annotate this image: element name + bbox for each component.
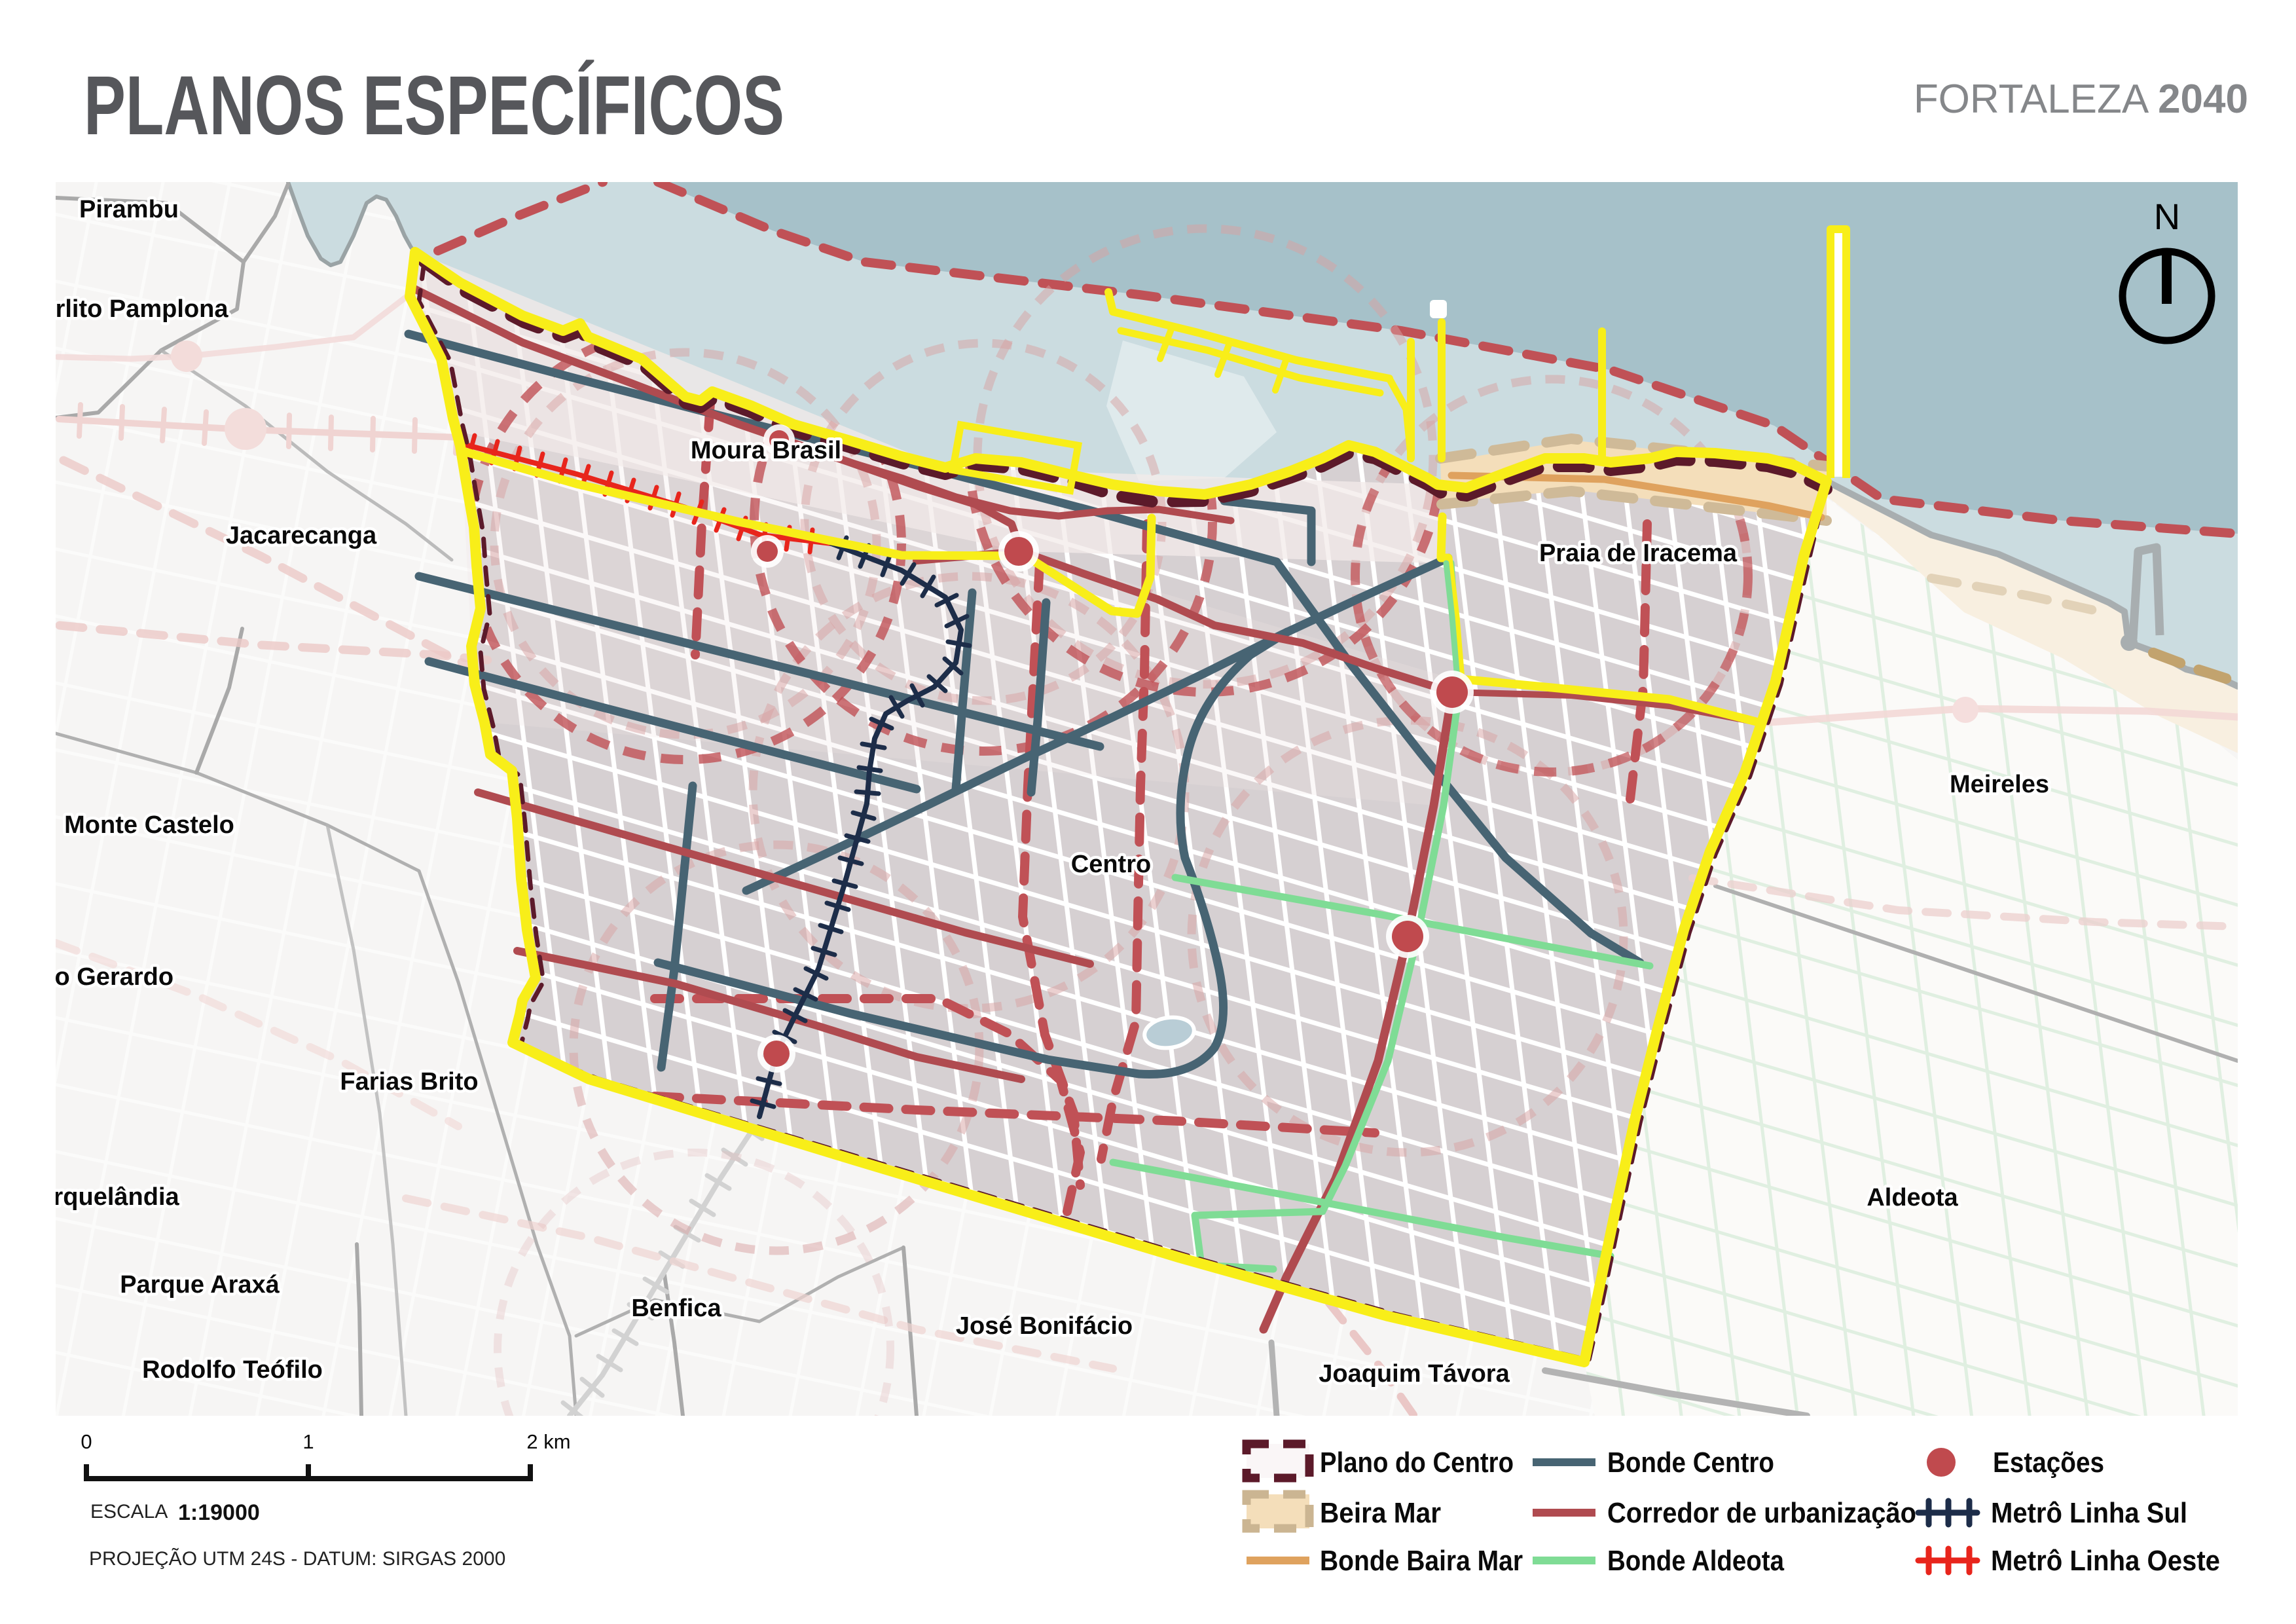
svg-text:Moura Brasil: Moura Brasil: [691, 437, 841, 464]
svg-text:Plano do Centro: Plano do Centro: [1320, 1447, 1514, 1479]
svg-text:Monte Castelo: Monte Castelo: [64, 811, 234, 839]
svg-text:Parquelândia: Parquelândia: [23, 1183, 179, 1211]
svg-text:Meireles: Meireles: [1950, 771, 2049, 798]
svg-text:Centro: Centro: [1071, 851, 1151, 878]
svg-text:Farias Brito: Farias Brito: [340, 1068, 478, 1096]
svg-text:Bonde Aldeota: Bonde Aldeota: [1607, 1545, 1784, 1577]
svg-text:Bonde Baira Mar: Bonde Baira Mar: [1320, 1545, 1523, 1577]
svg-text:FORTALEZA 2040: FORTALEZA 2040: [1914, 77, 2248, 122]
svg-text:2 km: 2 km: [526, 1430, 570, 1453]
svg-text:PROJEÇÃO UTM 24S - DATUM: SIRG: PROJEÇÃO UTM 24S - DATUM: SIRGAS 2000: [89, 1547, 505, 1570]
svg-text:Benfica: Benfica: [631, 1295, 721, 1322]
svg-text:1: 1: [302, 1430, 314, 1453]
svg-text:Carlito Pamplona: Carlito Pamplona: [24, 295, 228, 323]
svg-text:Praia de Iracema: Praia de Iracema: [1539, 540, 1738, 567]
svg-text:José Bonifácio: José Bonifácio: [956, 1312, 1133, 1340]
svg-text:Metrô Linha Sul: Metrô Linha Sul: [1991, 1497, 2187, 1529]
svg-text:Parque Araxá: Parque Araxá: [120, 1271, 280, 1299]
svg-text:São Gerardo: São Gerardo: [24, 963, 173, 991]
svg-text:Joaquim Távora: Joaquim Távora: [1319, 1360, 1510, 1388]
svg-text:Corredor de urbanização: Corredor de urbanização: [1607, 1497, 1916, 1529]
svg-text:0: 0: [81, 1430, 92, 1453]
svg-text:ESCALA: ESCALA: [90, 1501, 168, 1522]
svg-text:Bonde Centro: Bonde Centro: [1607, 1447, 1774, 1479]
svg-text:1:19000: 1:19000: [178, 1500, 260, 1525]
svg-text:N: N: [2154, 196, 2180, 237]
svg-text:Pirambu: Pirambu: [79, 196, 179, 223]
svg-text:Metrô Linha Oeste: Metrô Linha Oeste: [1991, 1545, 2220, 1577]
svg-text:Jacarecanga: Jacarecanga: [226, 522, 377, 549]
svg-text:Beira Mar: Beira Mar: [1320, 1497, 1441, 1529]
svg-text:PLANOS ESPECÍFICOS: PLANOS ESPECÍFICOS: [84, 59, 784, 153]
svg-text:Aldeota: Aldeota: [1867, 1184, 1958, 1211]
svg-text:Estações: Estações: [1993, 1447, 2104, 1479]
svg-text:Rodolfo Teófilo: Rodolfo Teófilo: [142, 1356, 323, 1384]
